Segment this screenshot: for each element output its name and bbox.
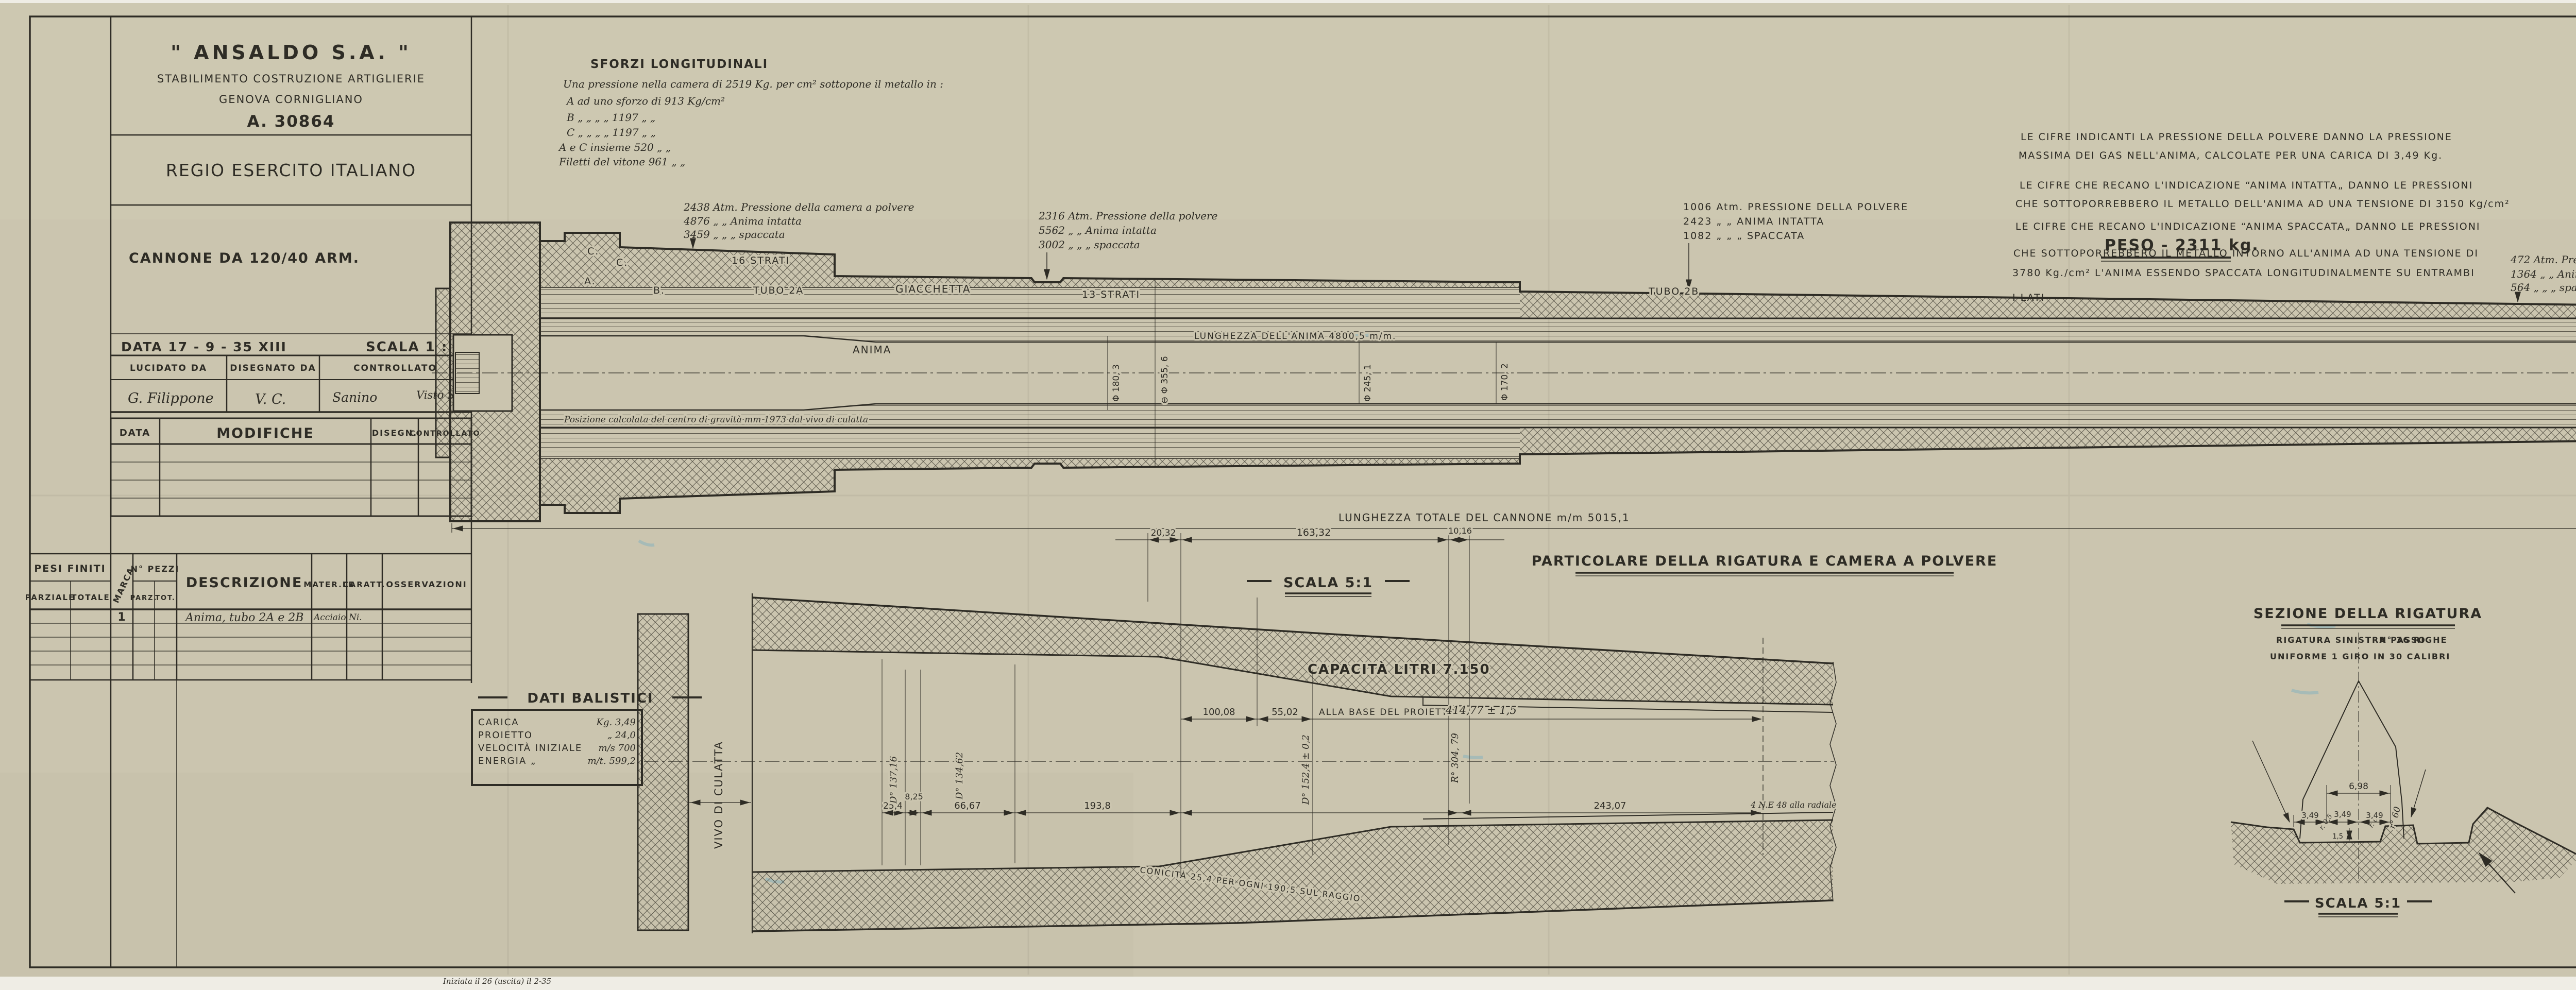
sforzi-title: SFORZI LONGITUDINALI [590,58,768,71]
hdr-caratt: CARATT. [343,580,386,589]
label-16-strati: 16 STRATI [732,255,790,266]
ballistic-row-velocita: VELOCITÀ INIZIALE m/s 700 [478,743,636,754]
proietto-label: PROIETTO [478,730,533,741]
dia-137-16: D° 137,16 [888,756,899,804]
hdr-tot: TOT. [155,594,176,602]
drawing-number: A. 30864 [247,112,335,131]
sforzi-l4: C „ „ „ „ 1197 „ „ [567,126,656,139]
dim-20-32: 20,32 [1151,528,1176,538]
detail-breech-block [638,614,688,930]
footer-handwritten-note: Iniziata il 26 (uscita) il 2-35 [443,977,551,986]
col-disegnato: DISEGNATO DA [230,363,316,373]
client-name: REGIO ESERCITO ITALIANO [166,160,416,180]
rifling-note-2: UNIFORME 1 GIRO IN 30 CALIBRI [2270,652,2450,661]
label-vivo-di-culatta: VIVO DI CULATTA [713,741,725,849]
label-a: A. [584,276,596,287]
hdr-descrizione: DESCRIZIONE [186,575,303,591]
callout3-line3: 1082 „ „ „ SPACCATA [1683,230,1805,242]
dia-152-4: D° 152,4 ± 0,2 [1300,735,1311,805]
ballistic-row-carica: CARICA Kg. 3,49 [478,717,636,728]
legend-l5: LE CIFRE CHE RECANO L'INDICAZIONE “ANIMA… [2015,221,2481,232]
label-alla-base: ALLA BASE DEL PROIETTO [1319,707,1456,718]
dia-245-1: Φ 245, 1 [1363,364,1373,402]
dia-355-6: ⊖ Φ 355, 6 [1160,356,1170,404]
signature-lucidato: G. Filippone [128,390,214,406]
hdr-n-pezzi: N° PEZZI [131,564,180,574]
radius-304-79: R° 304, 79 [1450,733,1461,783]
rifling-title: SEZIONE DELLA RIGATURA [2253,606,2482,622]
signature-controllato-1: Sanino [332,390,377,405]
dim-243-07: 243,07 [1594,800,1626,811]
velocita-label: VELOCITÀ INIZIALE [478,743,582,754]
company-dept: STABILIMENTO COSTRUZIONE ARTIGLIERIE [157,73,425,85]
dia-170-2: Φ 170, 2 [1500,363,1510,401]
hdr-totale: TOTALE [71,593,110,602]
row1-marca: 1 [117,611,126,624]
energia-label: ENERGIA „ [478,756,536,766]
label-cg-note: Posizione calcolata del centro di gravit… [564,415,868,425]
hdr-pesi-finiti: PESI FINITI [34,563,106,574]
label-giacchetta: GIACCHETTA [895,283,971,295]
weight-value: PESO - 2311 kg. [2105,236,2259,254]
sforzi-l5: A e C insieme 520 „ „ [558,141,671,153]
hdr-parz: PARZ. [130,594,158,602]
value-alla-base: 414,77 ± 1,5 [1445,704,1517,716]
callout1-line2: 4876 „ „ Anima intatta [683,215,802,227]
legend-l1: LE CIFRE INDICANTI LA PRESSIONE DELLA PO… [2021,131,2452,143]
detail-title: PARTICOLARE DELLA RIGATURA E CAMERA A PO… [1532,553,1998,569]
col-controllato: CONTROLLATO [353,363,437,373]
dim-8-25: 8,25 [905,792,923,801]
callout4-line1: 472 Atm. Pressione della polvere [2510,253,2576,266]
blueprint-sheet: " ANSALDO S.A. " STABILIMENTO COSTRUZION… [0,0,2576,990]
dim-3-49-a: 3,49 [2301,811,2318,820]
paper-background [0,0,2576,990]
rifling-note-3: N° 36 RIGHE [2379,635,2448,645]
sforzi-l3: B „ „ „ „ 1197 „ „ [566,111,655,124]
label-tubo-2b: TUBO 2B [1648,286,1699,297]
dim-3-49-b: 3,49 [2334,810,2351,819]
label-b: B. [653,285,665,296]
label-c-lower: C. [616,257,628,268]
dim-6-98: 6,98 [2349,781,2368,792]
callout2-line2: 5562 „ „ Anima intatta [1039,224,1157,236]
mod-col-title: MODIFICHE [216,425,314,441]
dim-66-67: 66,67 [954,800,981,811]
wire-band-top [540,287,1520,318]
hdr-osservazioni: OSSERVAZIONI [386,579,467,589]
dim-193-8: 193,8 [1084,800,1111,811]
proietto-value: „ 24,0 [607,730,636,741]
label-13-strati: 13 STRATI [1082,289,1140,300]
sforzi-l1: Una pressione nella camera di 2519 Kg. p… [563,78,943,90]
legend-l4: CHE SOTTOPORREBBERO IL METALLO DELL'ANIM… [2015,198,2510,210]
callout3-line1: 1006 Atm. PRESSIONE DELLA POLVERE [1683,201,1908,213]
company-city: GENOVA CORNIGLIANO [219,93,363,106]
label-c-upper: C. [587,246,599,257]
rifling-scale-label: SCALA 5:1 [2315,896,2401,911]
hdr-parziale: PARZIALE [25,593,75,602]
signature-disegnato: V. C. [255,391,286,407]
wire-band-bottom [540,428,1520,458]
dim-55-02: 55,02 [1272,707,1298,718]
col-lucidato: LUCIDATO DA [130,363,207,373]
label-anima: ANIMA [853,344,891,356]
callout1-line1: 2438 Atm. Pressione della camera a polve… [683,201,914,213]
label-tubo-2a: TUBO 2A [753,285,804,296]
callout4-line2: 1364 „ „ Anima intatta [2511,268,2576,280]
dim-3-49-c: 3,49 [2366,811,2383,820]
callout1-line3: 3459 „ „ „ spaccata [684,228,785,241]
dim-10-16: 10,16 [1448,526,1472,536]
carica-label: CARICA [478,717,519,728]
row1-descrizione: Anima, tubo 2A e 2B [184,611,303,624]
total-length-label: LUNGHEZZA TOTALE DEL CANNONE m/m 5015,1 [1338,511,1630,524]
detail-scale-label: SCALA 5:1 [1283,575,1373,591]
dim-163-32: 163,32 [1297,527,1331,538]
company-name: " ANSALDO S.A. " [171,41,412,64]
callout4-line3: 564 „ „ „ spaccata [2511,281,2576,294]
callout2-line1: 2316 Atm. Pressione della polvere [1038,210,1217,222]
legend-l2: MASSIMA DEI GAS NELL'ANIMA, CALCOLATE PE… [2019,150,2443,161]
dim-1-5: 1,5 [2332,833,2343,841]
ballistic-row-proietto: PROIETTO „ 24,0 [478,730,636,741]
legend-l3: LE CIFRE CHE RECANO L'INDICAZIONE “ANIMA… [2020,180,2473,191]
dia-134-62: D° 134,62 [954,752,965,800]
sforzi-l6: Filetti del vitone 961 „ „ [558,156,685,168]
mod-col-data: DATA [120,428,150,438]
dia-180-3: Φ 180, 3 [1111,364,1122,402]
label-bore-length: LUNGHEZZA DELL'ANIMA 4800,5 m/m. [1194,331,1396,342]
velocita-value: m/s 700 [599,743,636,754]
dim-100-08: 100,08 [1203,707,1235,718]
drawing-date: DATA 17 - 9 - 35 XIII [121,339,287,354]
row1-materiale: Acciaio Ni. [313,612,362,623]
carica-value: Kg. 3,49 [597,717,636,728]
liner-band-top [540,318,2576,342]
sforzi-l2: A ad uno sforzo di 913 Kg/cm² [566,95,725,107]
energia-value: m/t. 599,2 [588,756,636,766]
ballistic-row-energia: ENERGIA „ m/t. 599,2 [478,756,636,766]
callout3-line2: 2423 „ „ ANIMA INTATTA [1683,216,1824,227]
ballistic-rows: CARICA Kg. 3,49 PROIETTO „ 24,0 VELOCITÀ… [478,715,636,769]
legend-l7: 3780 Kg./cm² L'ANIMA ESSENDO SPACCATA LO… [2012,267,2475,279]
callout2-line3: 3002 „ „ „ spaccata [1039,238,1140,251]
drawing-subject: CANNONE DA 120/40 ARM. [129,250,360,266]
drawing-canvas: " ANSALDO S.A. " STABILIMENTO COSTRUZION… [0,0,2576,990]
ballistic-title: DATI BALISTICI [527,691,653,706]
label-capacity: CAPACITÀ LITRI 7.150 [1308,661,1490,677]
